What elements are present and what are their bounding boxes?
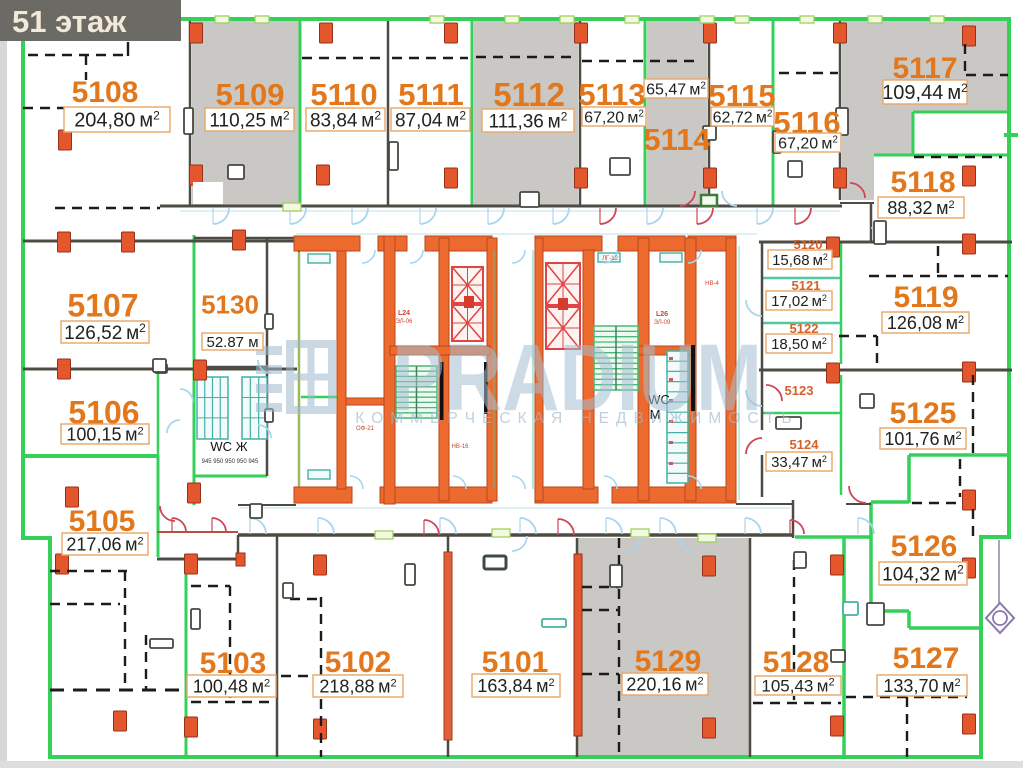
svg-text:88,32 м2: 88,32 м2: [887, 198, 954, 218]
svg-text:5124: 5124: [790, 437, 820, 452]
svg-text:18,50 м2: 18,50 м2: [771, 336, 827, 353]
svg-text:КОММЕРЧЕСКАЯ НЕДВИЖИМОСТЬ: КОММЕРЧЕСКАЯ НЕДВИЖИМОСТЬ: [355, 410, 798, 427]
svg-text:126,52 м2: 126,52 м2: [64, 321, 146, 344]
svg-text:52.87 м: 52.87 м: [206, 334, 258, 351]
svg-text:204,80 м2: 204,80 м2: [74, 109, 160, 132]
svg-text:110,25 м2: 110,25 м2: [209, 108, 290, 131]
svg-text:104,32 м2: 104,32 м2: [882, 562, 964, 585]
svg-text:87,04 м2: 87,04 м2: [395, 108, 466, 131]
svg-text:5107: 5107: [67, 288, 138, 324]
svg-text:L24: L24: [398, 310, 410, 317]
svg-text:5126: 5126: [891, 530, 958, 563]
svg-text:L26: L26: [656, 311, 668, 318]
svg-text:5125: 5125: [890, 397, 957, 430]
svg-text:5102: 5102: [325, 646, 392, 679]
svg-text:67,20 м2: 67,20 м2: [778, 134, 838, 152]
svg-text:105,43 м2: 105,43 м2: [761, 677, 834, 696]
svg-text:НВ-16: НВ-16: [451, 444, 469, 450]
svg-text:ЛГ-12: ЛГ-12: [602, 256, 619, 262]
svg-text:НВ-4: НВ-4: [705, 281, 719, 287]
svg-text:217,06 м2: 217,06 м2: [66, 534, 143, 554]
svg-text:100,48 м2: 100,48 м2: [193, 676, 270, 696]
svg-text:5108: 5108: [72, 76, 139, 109]
svg-text:5123: 5123: [785, 383, 814, 398]
svg-text:15,68 м2: 15,68 м2: [772, 252, 828, 269]
svg-text:133,70 м2: 133,70 м2: [883, 676, 960, 696]
svg-text:945 950 950 950 945: 945 950 950 950 945: [202, 459, 259, 465]
svg-text:126,08 м2: 126,08 м2: [887, 313, 964, 333]
svg-text:101,76 м2: 101,76 м2: [884, 429, 961, 449]
svg-text:5128: 5128: [763, 646, 830, 679]
svg-text:62,72 м2: 62,72 м2: [713, 108, 773, 126]
svg-text:5112: 5112: [493, 76, 565, 113]
svg-text:67,20 м2: 67,20 м2: [584, 108, 644, 126]
svg-text:51 этаж: 51 этаж: [12, 4, 127, 39]
svg-text:65,47 м2: 65,47 м2: [646, 80, 706, 98]
svg-text:109,44 м2: 109,44 м2: [882, 81, 968, 104]
svg-text:218,88 м2: 218,88 м2: [319, 676, 396, 696]
svg-text:220,16 м2: 220,16 м2: [626, 674, 703, 694]
svg-text:5119: 5119: [893, 281, 958, 314]
svg-text:5130: 5130: [201, 289, 259, 319]
svg-text:17,02 м2: 17,02 м2: [771, 293, 827, 310]
svg-text:83,84 м2: 83,84 м2: [310, 108, 381, 131]
svg-text:5127: 5127: [893, 642, 960, 675]
svg-text:5118: 5118: [890, 166, 955, 199]
svg-text:163,84 м2: 163,84 м2: [477, 676, 554, 696]
svg-text:100,15 м2: 100,15 м2: [66, 424, 143, 444]
svg-text:5111: 5111: [398, 77, 464, 112]
svg-text:5109: 5109: [216, 77, 285, 112]
svg-text:33,47 м2: 33,47 м2: [771, 454, 827, 471]
svg-text:5110: 5110: [310, 77, 377, 112]
svg-text:WC Ж: WC Ж: [210, 439, 247, 454]
svg-text:5114: 5114: [643, 122, 711, 157]
svg-text:111,36 м2: 111,36 м2: [489, 109, 568, 132]
